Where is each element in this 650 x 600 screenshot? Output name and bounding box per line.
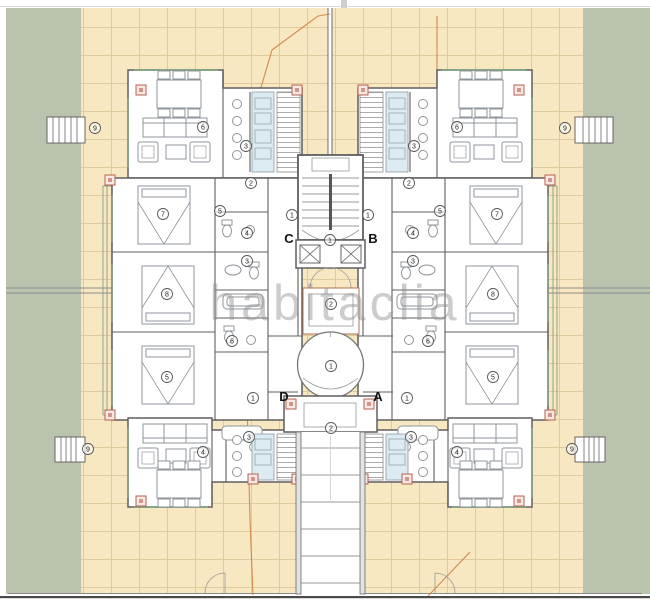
room-number-badge: 6 — [452, 122, 463, 133]
svg-text:6: 6 — [455, 124, 459, 131]
room-number-badge: 3 — [408, 256, 419, 267]
svg-text:7: 7 — [495, 211, 499, 218]
svg-text:1: 1 — [366, 212, 370, 219]
room-number-badge: 6 — [198, 122, 209, 133]
svg-text:1: 1 — [405, 395, 409, 402]
unit-label-d: D — [279, 389, 288, 404]
svg-text:6: 6 — [230, 338, 234, 345]
room-number-badge: 2 — [404, 178, 415, 189]
room-number-badge: 4 — [242, 228, 253, 239]
room-number-badge: 5 — [488, 372, 499, 383]
svg-text:3: 3 — [412, 143, 416, 150]
svg-text:5: 5 — [218, 208, 222, 215]
svg-text:3: 3 — [409, 434, 413, 441]
room-number-badge: 1 — [325, 235, 336, 246]
svg-text:2: 2 — [329, 425, 333, 432]
room-number-badge: 3 — [244, 432, 255, 443]
room-number-badge: 9 — [90, 123, 101, 134]
room-number-badge: 8 — [162, 289, 173, 300]
svg-text:4: 4 — [411, 230, 415, 237]
svg-text:4: 4 — [201, 449, 205, 456]
unit-label-a: A — [373, 389, 383, 404]
svg-text:1: 1 — [290, 212, 294, 219]
room-number-badge: 8 — [488, 289, 499, 300]
lawn-right — [583, 8, 650, 594]
room-number-badge: 4 — [198, 447, 209, 458]
room-number-badge: 1 — [363, 210, 374, 221]
svg-text:8: 8 — [165, 291, 169, 298]
floor-plan-canvas: C B D A 99663322775544338866551111443399… — [0, 0, 650, 600]
room-number-badge: 7 — [492, 209, 503, 220]
svg-text:7: 7 — [161, 211, 165, 218]
room-number-badge: 1 — [326, 361, 337, 372]
room-number-badge: 2 — [246, 178, 257, 189]
svg-text:2: 2 — [407, 180, 411, 187]
svg-text:9: 9 — [86, 446, 90, 453]
svg-text:4: 4 — [455, 449, 459, 456]
stairwell — [298, 155, 363, 241]
svg-text:1: 1 — [329, 363, 333, 370]
room-number-badge: 3 — [242, 256, 253, 267]
watermark: habitaclia — [209, 275, 460, 331]
svg-text:5: 5 — [491, 374, 495, 381]
room-number-badge: 9 — [83, 444, 94, 455]
room-number-badge: 4 — [452, 447, 463, 458]
svg-text:1: 1 — [251, 395, 255, 402]
room-number-badge: 4 — [408, 228, 419, 239]
stair-hatch-strip — [277, 92, 300, 172]
floor-plan-page: C B D A 99663322775544338866551111443399… — [0, 0, 650, 600]
room-number-badge: 7 — [158, 209, 169, 220]
lawn-left — [6, 8, 81, 594]
room-number-badge: 1 — [402, 393, 413, 404]
svg-text:9: 9 — [93, 125, 97, 132]
room-number-badge: 9 — [560, 123, 571, 134]
unit-label-c: C — [284, 231, 294, 246]
room-number-badge: 3 — [409, 141, 420, 152]
svg-text:9: 9 — [570, 446, 574, 453]
room-number-badge: 6 — [227, 336, 238, 347]
room-number-badge: 5 — [162, 372, 173, 383]
svg-text:3: 3 — [411, 258, 415, 265]
room-number-badge: 2 — [326, 423, 337, 434]
unit-label-b: B — [368, 231, 377, 246]
svg-text:3: 3 — [244, 143, 248, 150]
svg-text:6: 6 — [201, 124, 205, 131]
room-number-badge: 1 — [287, 210, 298, 221]
room-number-badge: 5 — [435, 206, 446, 217]
room-number-badge: 5 — [215, 206, 226, 217]
svg-text:3: 3 — [245, 258, 249, 265]
svg-text:9: 9 — [563, 125, 567, 132]
svg-text:5: 5 — [438, 208, 442, 215]
svg-text:2: 2 — [249, 180, 253, 187]
svg-text:6: 6 — [426, 338, 430, 345]
svg-text:1: 1 — [328, 237, 332, 244]
svg-text:3: 3 — [247, 434, 251, 441]
site-bottom-edge — [0, 596, 650, 598]
room-number-badge: 3 — [406, 432, 417, 443]
svg-text:5: 5 — [165, 374, 169, 381]
room-number-badge: 6 — [423, 336, 434, 347]
room-number-badge: 9 — [567, 444, 578, 455]
room-number-badge: 1 — [248, 393, 259, 404]
entry-stair — [296, 432, 365, 594]
svg-text:4: 4 — [245, 230, 249, 237]
room-number-badge: 3 — [241, 141, 252, 152]
svg-text:8: 8 — [491, 291, 495, 298]
